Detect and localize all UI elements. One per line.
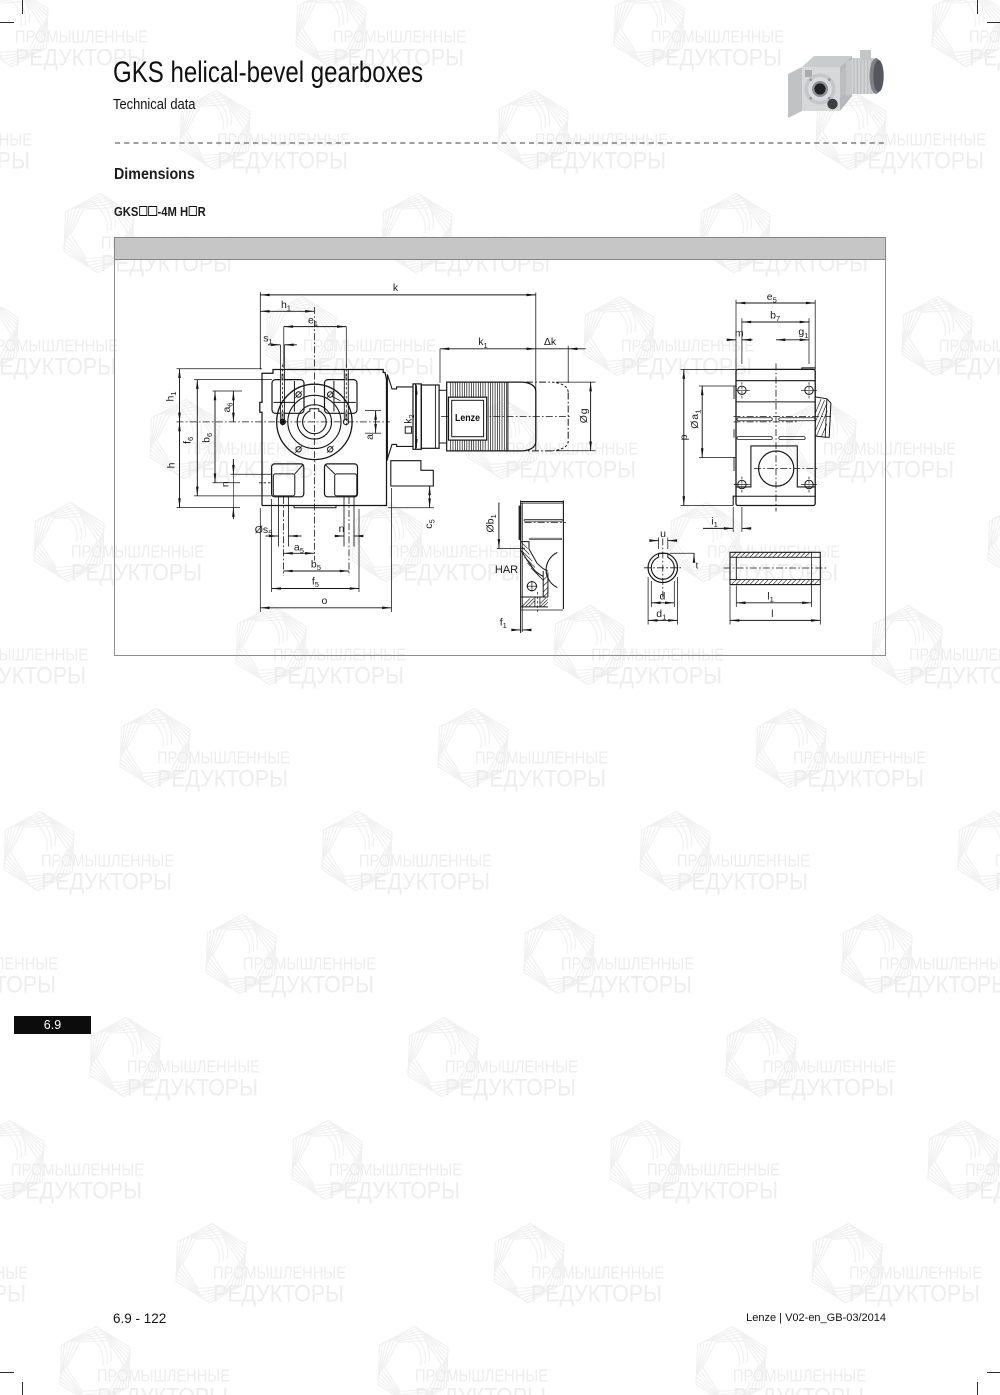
- svg-text:k1: k1: [478, 336, 487, 350]
- svg-text:h: h: [165, 462, 177, 468]
- svg-text:Δk: Δk: [544, 336, 557, 348]
- svg-text:e5: e5: [767, 291, 777, 305]
- svg-text:Ø a1: Ø a1: [689, 410, 703, 429]
- svg-text:a5: a5: [294, 541, 304, 555]
- svg-text:b7: b7: [770, 310, 780, 324]
- svg-text:m: m: [735, 328, 744, 340]
- svg-text:c5: c5: [423, 519, 437, 528]
- svg-text:k: k: [393, 282, 399, 294]
- svg-text:f5: f5: [312, 575, 319, 589]
- svg-text:e1: e1: [308, 314, 318, 328]
- svg-text:a: a: [364, 434, 376, 440]
- svg-text:d: d: [659, 590, 665, 602]
- svg-text:Ø g: Ø g: [578, 408, 590, 423]
- svg-text:p: p: [678, 434, 690, 440]
- svg-text:i1: i1: [711, 516, 718, 530]
- svg-text:k2: k2: [403, 414, 417, 423]
- svg-text:f1: f1: [500, 616, 507, 630]
- svg-text:HAR: HAR: [495, 564, 518, 576]
- svg-text:s1: s1: [263, 333, 272, 347]
- svg-text:f6: f6: [181, 437, 195, 444]
- svg-text:Øb1: Øb1: [485, 514, 499, 532]
- svg-text:b6: b6: [201, 433, 215, 443]
- svg-text:n: n: [339, 523, 345, 535]
- svg-text:b5: b5: [311, 558, 321, 572]
- svg-text:u: u: [660, 528, 666, 540]
- svg-text:h1: h1: [281, 299, 291, 313]
- svg-text:a6: a6: [221, 402, 235, 412]
- svg-text:Lenze: Lenze: [455, 412, 480, 424]
- svg-text:t: t: [696, 561, 699, 572]
- svg-text:g1: g1: [798, 326, 808, 340]
- svg-text:l: l: [771, 608, 773, 620]
- svg-text:n: n: [220, 481, 232, 487]
- svg-text:h1: h1: [164, 391, 178, 401]
- svg-text:o: o: [321, 595, 327, 607]
- svg-text:l1: l1: [767, 590, 774, 604]
- svg-text:d1: d1: [656, 608, 666, 622]
